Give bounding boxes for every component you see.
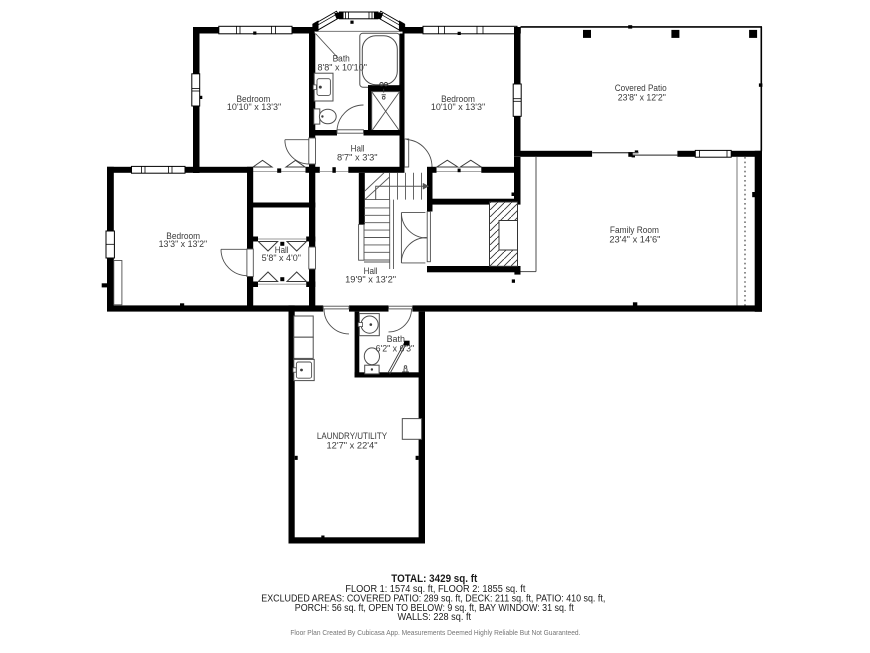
- svg-text:WALLS: 228 sq. ft: WALLS: 228 sq. ft: [398, 612, 472, 623]
- svg-text:8'7" x 3'3": 8'7" x 3'3": [337, 152, 378, 162]
- svg-text:13'3" x 13'2": 13'3" x 13'2": [159, 239, 208, 249]
- svg-text:23'4" x 14'6": 23'4" x 14'6": [609, 234, 660, 244]
- svg-text:23'8" x 12'2": 23'8" x 12'2": [618, 92, 666, 102]
- svg-text:6'2" x 6'3": 6'2" x 6'3": [376, 343, 415, 353]
- svg-text:10'10" x 13'3": 10'10" x 13'3": [227, 102, 281, 112]
- svg-text:19'9" x 13'2": 19'9" x 13'2": [345, 274, 396, 284]
- svg-text:Floor Plan Created By Cubicasa: Floor Plan Created By Cubicasa App. Meas…: [290, 628, 580, 637]
- svg-text:8'8" x 10'10": 8'8" x 10'10": [318, 63, 367, 73]
- svg-text:12'7" x 22'4": 12'7" x 22'4": [327, 441, 378, 451]
- svg-text:5'8" x 4'0": 5'8" x 4'0": [262, 253, 301, 263]
- svg-text:10'10" x 13'3": 10'10" x 13'3": [431, 102, 485, 112]
- svg-text:LAUNDRY/UTILITY: LAUNDRY/UTILITY: [317, 431, 387, 441]
